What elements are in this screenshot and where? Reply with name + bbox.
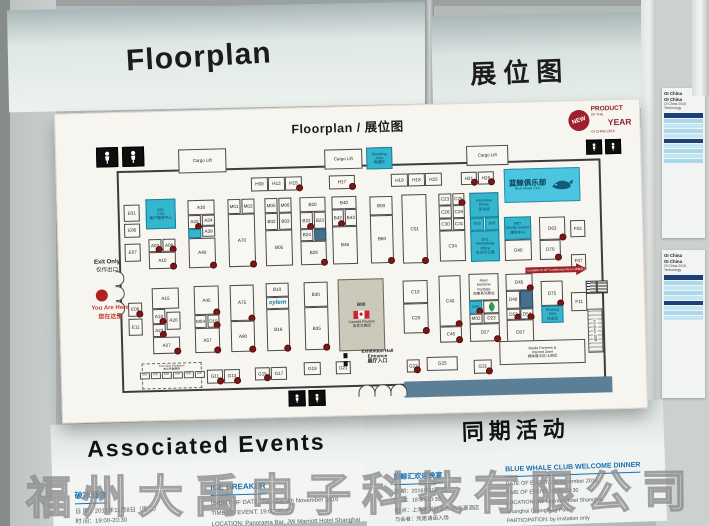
booth-a75: A75 (230, 285, 255, 322)
booth-f03: F03 (570, 220, 585, 237)
booth-b46: B46 (332, 226, 358, 265)
booth-g23: G23 (407, 359, 420, 372)
booth-g11: G11 (207, 369, 223, 383)
booth-b30: B30 (304, 282, 329, 308)
booth-c30: C30 (439, 218, 452, 230)
booth-d20: D20 (469, 301, 482, 314)
ice-breaker-zh-column: 破冰酒会 日 期：2016年11月8日（周二） 时 间：19:00-20:30 … (74, 476, 204, 526)
wall-corner-pole (692, 0, 709, 96)
booth-c28: C28 (453, 205, 465, 218)
booth-d54: D54 (520, 308, 533, 319)
booth-e11: E11 (128, 318, 142, 335)
restroom-icon (96, 147, 119, 168)
booth-a38: A38 (202, 226, 215, 237)
canada-flag-icon (353, 310, 369, 318)
booth-c31: C31 (453, 218, 465, 230)
booth-h13: H13 (268, 177, 285, 191)
booth-b05: B05 (265, 230, 293, 267)
booth-h15: H15 (285, 176, 302, 190)
booth-d45: D45 (505, 273, 532, 291)
restroom-icon (288, 390, 305, 406)
booth-b24: B24 (300, 229, 313, 241)
booth-m06: M06 (278, 198, 291, 213)
booth-dark (314, 229, 326, 241)
booth-h09: H09 (251, 177, 268, 191)
oi-china-poster-1: OI ChinaOI ChinaOI China 2016Technology (662, 88, 705, 238)
booth-b10: B10 (266, 283, 289, 298)
booth-b40: B40 (331, 196, 356, 210)
oi-china-poster-2: OI ChinaOI ChinaOI China 2016Technology (662, 250, 705, 398)
floorplan-heading: Floorplan (125, 36, 272, 78)
booth-c01: C01 (401, 194, 428, 264)
booth-e01: E01 (123, 205, 139, 222)
booth-c20: C20 (403, 303, 429, 334)
entrance-door-arc (374, 384, 391, 396)
associated-events-panel: Associated Events 破冰酒会 日 期：2016年11月8日（周二… (50, 415, 373, 526)
entrance-door-arc (358, 384, 375, 396)
exit-only-label: Exit Only 仅作出口 (71, 258, 143, 274)
booth-resting-area: RestingArea休息区 (541, 305, 563, 323)
event-title-en: BLUE WHALE CLUB WELCOME DINNER (505, 460, 641, 478)
booth-leaf (483, 300, 499, 313)
booth-m01: M01 (227, 199, 240, 214)
booth-c26: C26 (439, 205, 452, 218)
restroom-icon (605, 139, 621, 154)
booth-m04: M04 (194, 315, 206, 328)
booth-a20: A20 (166, 311, 180, 329)
booth-d49: D49 (506, 291, 520, 309)
welcome-dinner-zh-column: 蓝鲸汇欢迎晚宴 日 期：2016年11月7日 时 间：18:30-20:30 地… (393, 458, 500, 526)
booth-b23: B23 (314, 212, 326, 229)
booth-d05: D05 (485, 217, 499, 230)
booth-h18: H18 (408, 173, 425, 186)
booth-g25: G25 (427, 356, 458, 371)
booth-b50: B50 (369, 196, 392, 216)
booth-b60: B60 (370, 215, 394, 264)
booth-media-partners-internet-zone: Media Partners &Internet Zone媒体展示区/上网区 (499, 339, 586, 365)
booth-f11: F11 (571, 292, 587, 311)
booth-d63: D63 (539, 216, 566, 240)
booth-d03: D03 (470, 218, 484, 231)
booth-b03: B03 (279, 213, 292, 230)
booth-h21: H21 (461, 172, 477, 185)
booth-g19: G19 (304, 362, 321, 375)
stairs-icon (597, 280, 608, 293)
booth-g31: G31 (474, 359, 492, 373)
booth-c34: C34 (439, 230, 466, 262)
ice-breaker-en-column: ICE BREAKER EVENT OF DATE: Tuesday 8th N… (210, 467, 370, 526)
booth-h19: H19 (391, 173, 408, 186)
restroom-icon (122, 146, 145, 167)
booth-c45: C45 (440, 326, 462, 343)
photo-of-floorplan-wall: Floorplan 展位图 OI ChinaOI ChinaOI China 2… (0, 0, 709, 526)
booth-maritime-portfolio: MeetMaritimePortfolio海事系列展会 (468, 273, 499, 301)
booth-h25: H25 (425, 173, 442, 186)
exhibition-hall-entrance-label: Exhibition Hall Entrance 展厅入口 (349, 348, 405, 366)
booth-a33: A33 (188, 215, 201, 229)
booth-a70: A70 (228, 214, 256, 268)
floorplan-heading-zh: 展位图 (470, 51, 570, 92)
concurrent-events-panel: 同期活动 蓝鲸汇欢迎晚宴 日 期：2016年11月7日 时 间：18:30-20… (363, 400, 667, 526)
event-title-zh: 蓝鲸汇欢迎晚宴 (393, 471, 442, 486)
booth-d40: D40 (505, 239, 533, 261)
booth-m02: M02 (469, 314, 482, 324)
restroom-icon (586, 139, 602, 154)
booth-e06: E06 (124, 224, 140, 238)
booth-d15: D15 (207, 314, 219, 327)
booth-h17: H17 (329, 175, 355, 190)
entrance-marker-icon (343, 353, 347, 358)
booth-blue-whale-club: 蓝鲸俱乐部Blue Whale Club (504, 167, 581, 203)
booth-a45: A45 (194, 285, 220, 315)
booth-g15: G15 (255, 367, 270, 380)
booth-g17: G17 (271, 367, 287, 380)
associated-events-heading: Associated Events (87, 428, 326, 462)
booth-b26: B26 (300, 241, 327, 266)
you-are-here-label: You Are Here 您在这里 (70, 304, 150, 321)
booth-b18: B18 (266, 309, 290, 352)
entrance-door-arc (390, 384, 407, 396)
booth-h26: H26 (478, 171, 494, 184)
booth-g13: G13 (224, 369, 240, 383)
booth-d27: D27 (470, 323, 500, 342)
booth-b80: B80Canada Pavilion加拿大展团 (337, 278, 385, 351)
booth-smoking-area: SmokingArea吸烟区 (366, 147, 393, 170)
booth-a57: A57 (195, 327, 221, 353)
booth-b43: B43 (345, 209, 357, 226)
booth-b42: B42 (332, 209, 344, 226)
booth-dark (520, 290, 533, 308)
event-title-zh: 破冰酒会 (74, 488, 106, 504)
booth-a30: A30 (187, 200, 214, 216)
header-panel-left: Floorplan (7, 2, 429, 113)
booth-first-time-exhibitors: First Time Exhibitors首次参展展商G01G02G03G04G… (142, 362, 203, 390)
booth-d22: D22 (483, 313, 499, 323)
floorplan-map: Exit Only 仅作出口 You Are Here 您在这里 Exhibit… (66, 130, 629, 416)
you-are-here-dot (96, 289, 108, 301)
floorplan-board: Floorplan / 展位图 NEW PRODUCT OF THE YEAR … (54, 98, 648, 423)
booth-d75: D75 (541, 280, 564, 306)
booth-a10: A10 (149, 252, 176, 270)
event-title-en: ICE BREAKER (210, 479, 266, 495)
booth-a15: A15 (152, 288, 180, 310)
booth-c10: C10 (403, 280, 429, 304)
stairs-icon (586, 281, 597, 294)
booth-d01: D01RebookingOffice主办办公室 (470, 230, 500, 262)
booth-interview-room: InterviewRoom采访间 (469, 192, 499, 218)
booth-a40: A40 (188, 238, 216, 269)
booth-d53: D53 (506, 309, 520, 320)
booth-a34: A34 (202, 215, 215, 226)
booth-b22: B22 (300, 212, 313, 229)
whale-icon (549, 177, 575, 192)
booth-a03: A03 (148, 239, 161, 252)
booth-xylem: xylem (266, 297, 289, 310)
booth-d70: D70 (540, 240, 562, 261)
entrance-marker-icon (344, 361, 348, 366)
booth-c40: C40 (438, 275, 461, 327)
booth-m07: M07Media Center媒体中心 (504, 216, 532, 240)
booth-c25: C25 (452, 193, 464, 205)
booth-m05: M05 (264, 198, 277, 213)
booth-m03: M03 (241, 199, 254, 214)
booth-cargo-lift: Cargo Lift (466, 145, 509, 166)
booth-a01: A01CSC客户服务中心 (145, 199, 176, 230)
header-panel-right: 展位图 (431, 12, 657, 113)
welcome-dinner-en-column: BLUE WHALE CLUB WELCOME DINNER DATE OF E… (505, 448, 657, 526)
red-marker-dot (174, 347, 181, 354)
booth-a23: A23 (153, 324, 166, 337)
booth-a27: A27 (153, 337, 180, 355)
booth-c23: C23 (438, 193, 451, 205)
booth-a08: A08 (162, 239, 175, 252)
booth-teal (188, 229, 201, 238)
booth-b02: B02 (265, 213, 278, 230)
booth-b35: B35 (304, 307, 329, 351)
escalator-strip: Escalator 扶梯 (587, 308, 603, 352)
booth-a18: A18 (152, 309, 165, 324)
restroom-icon (308, 390, 325, 406)
leaf-icon (486, 302, 496, 312)
booth-a90: A90 (231, 321, 256, 353)
concurrent-events-heading: 同期活动 (461, 411, 570, 447)
booth-b20: B20 (299, 197, 325, 213)
booth-cargo-lift: Cargo Lift (178, 148, 227, 173)
booth-cargo-lift: Cargo Lift (324, 149, 363, 170)
